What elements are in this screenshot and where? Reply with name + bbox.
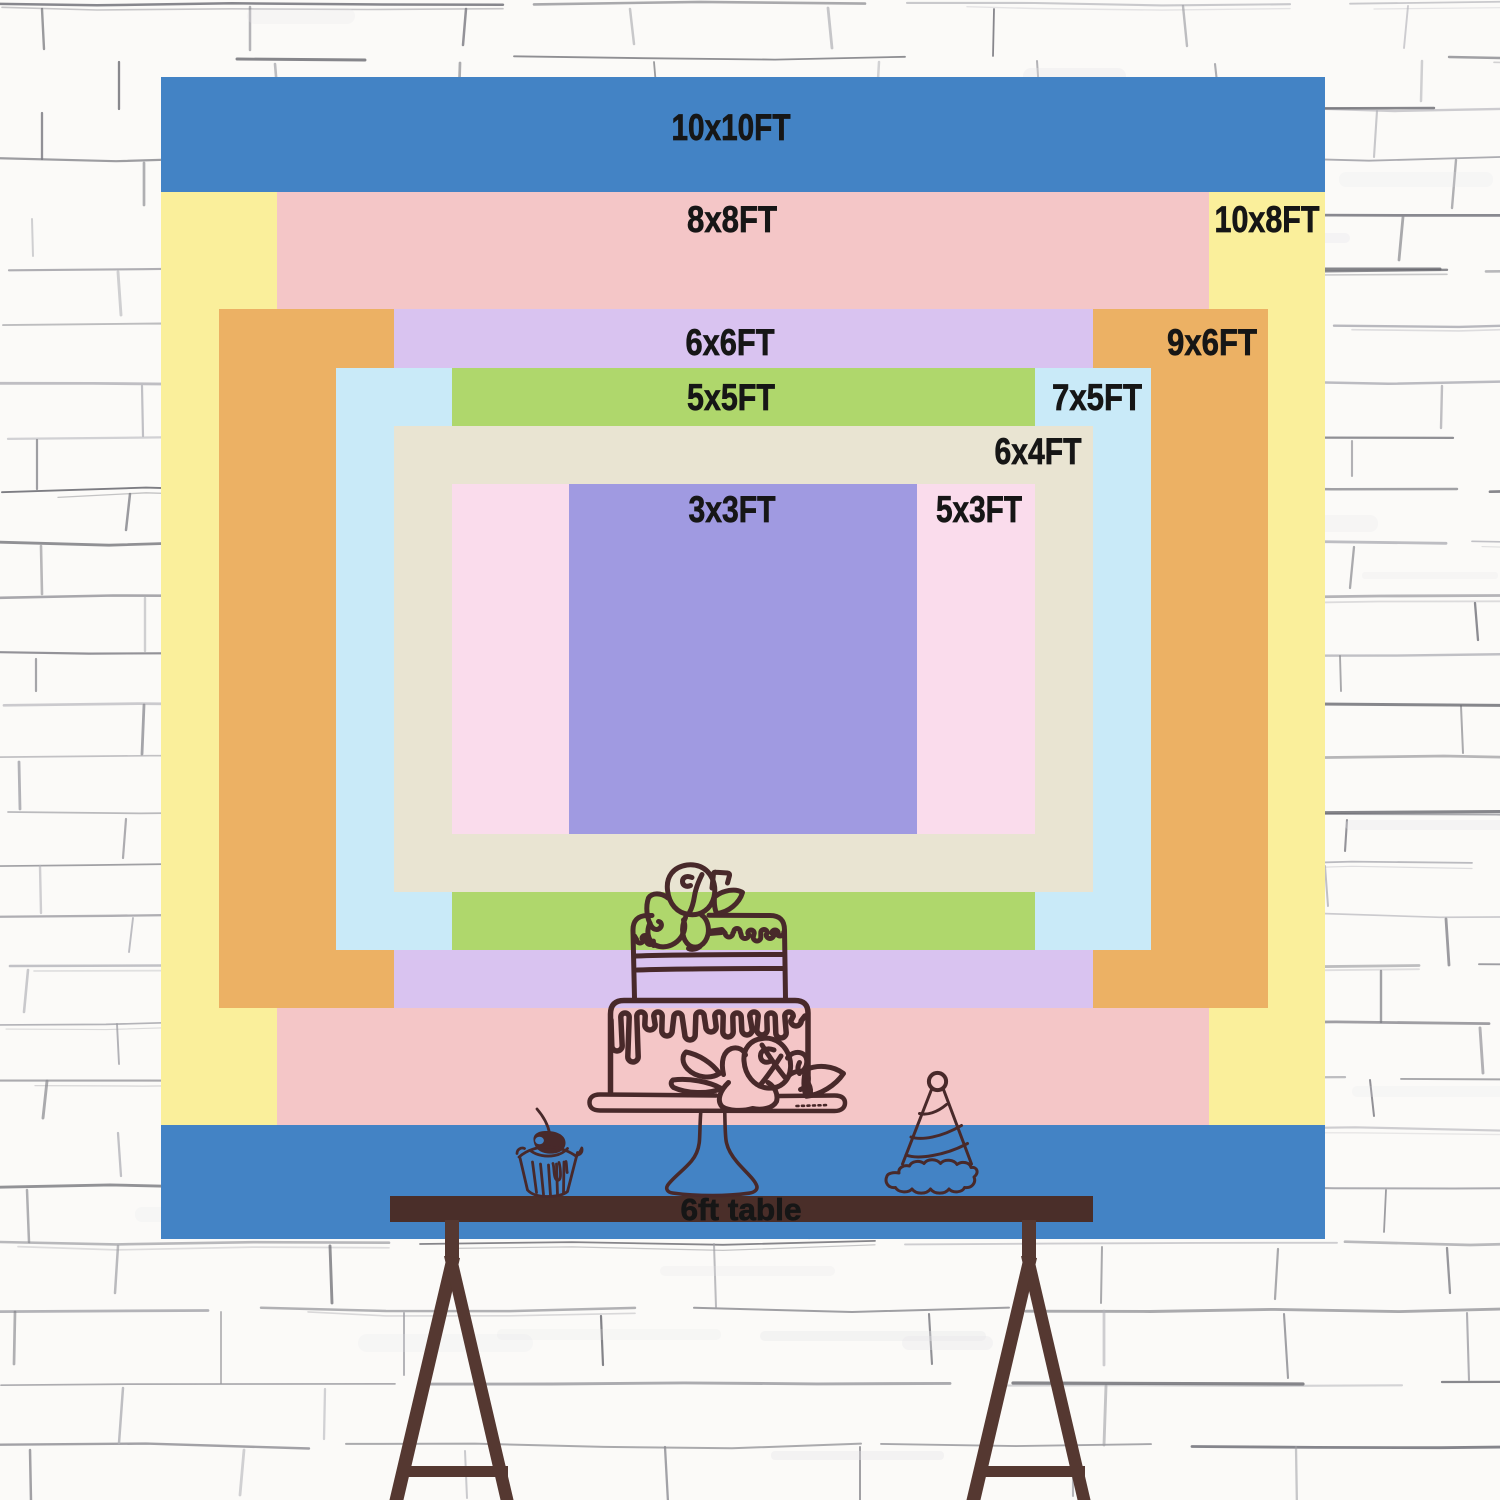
svg-text:10x8FT: 10x8FT — [1215, 199, 1320, 240]
svg-text:9x6FT: 9x6FT — [1167, 322, 1257, 363]
svg-text:6x6FT: 6x6FT — [686, 322, 775, 363]
svg-text:6ft table: 6ft table — [681, 1192, 802, 1227]
svg-text:5x5FT: 5x5FT — [687, 377, 775, 418]
svg-text:10x10FT: 10x10FT — [672, 107, 791, 148]
svg-text:3x3FT: 3x3FT — [689, 489, 776, 530]
svg-text:8x8FT: 8x8FT — [687, 199, 777, 240]
svg-text:5x3FT: 5x3FT — [936, 489, 1022, 530]
svg-text:6x4FT: 6x4FT — [995, 431, 1082, 472]
svg-text:7x5FT: 7x5FT — [1052, 377, 1142, 418]
